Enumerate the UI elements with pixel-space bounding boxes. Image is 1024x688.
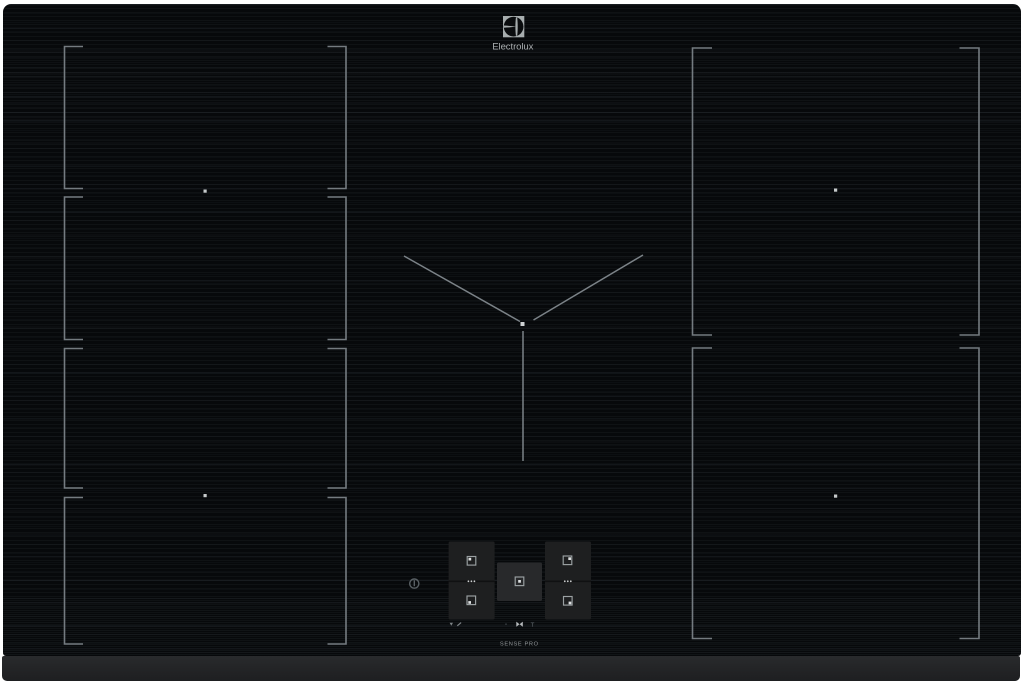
svg-text:SENSE PRO: SENSE PRO <box>500 642 539 648</box>
svg-text:Electrolux: Electrolux <box>492 42 533 53</box>
